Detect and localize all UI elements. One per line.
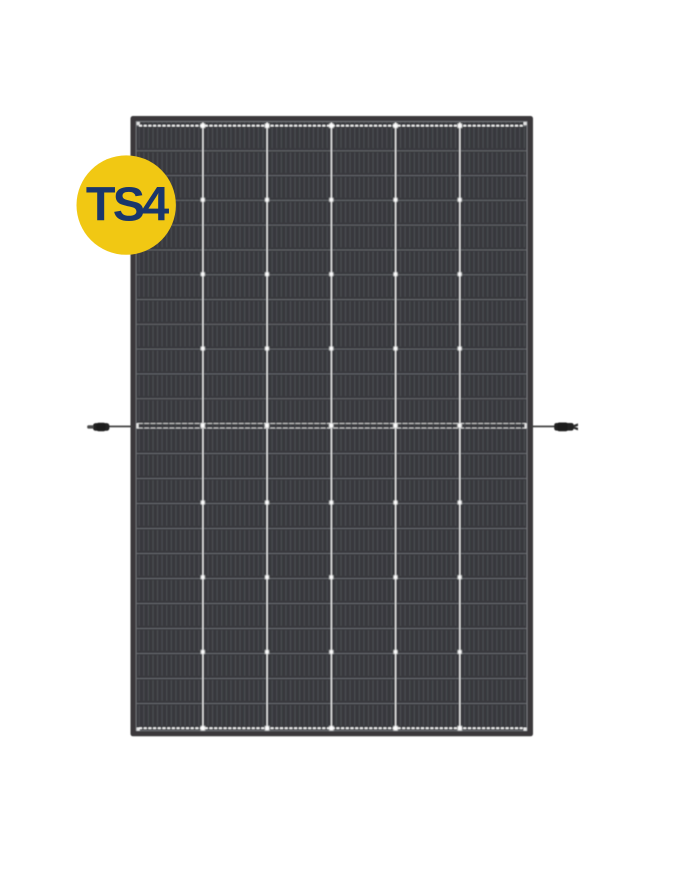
svg-text:TS4: TS4 (86, 177, 169, 231)
